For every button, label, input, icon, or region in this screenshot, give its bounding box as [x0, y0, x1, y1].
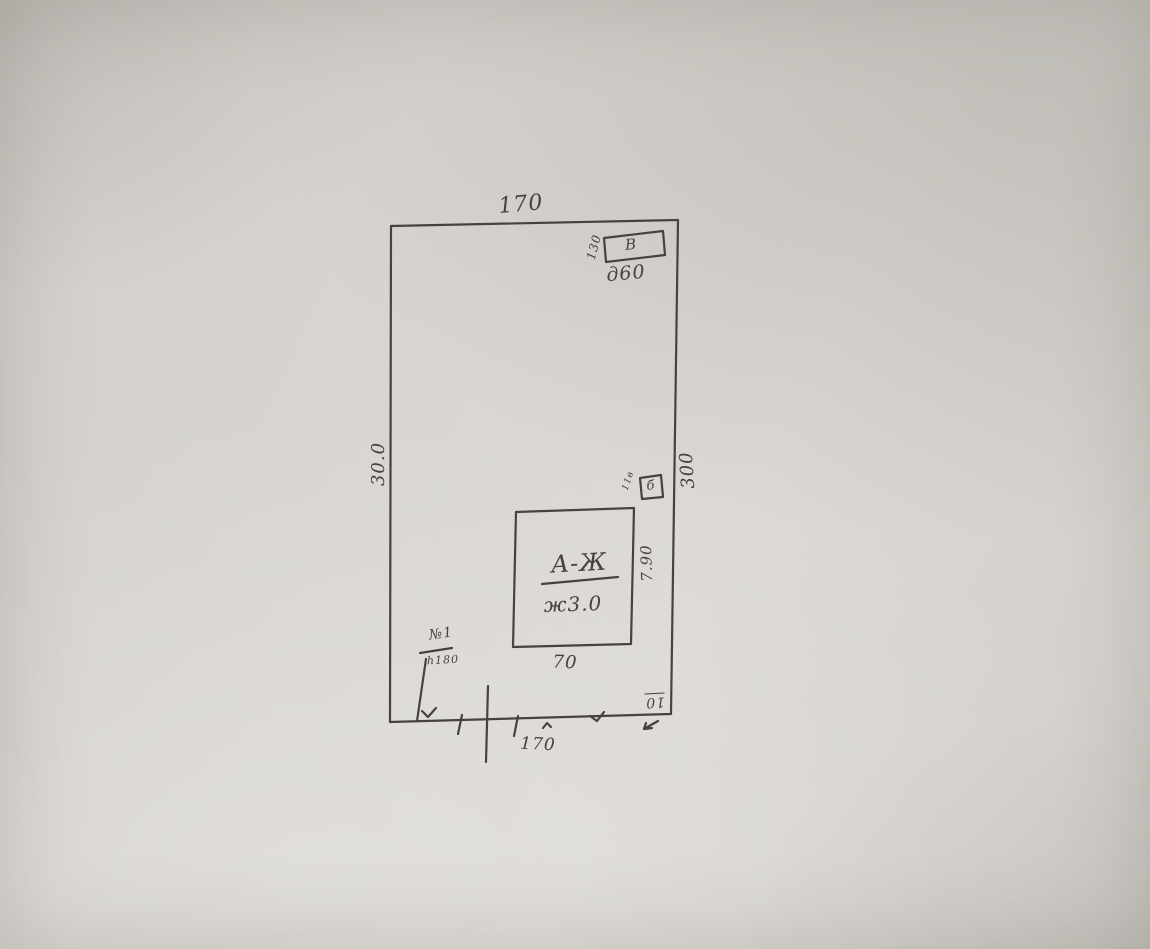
street-bottom-dimension: 170	[520, 736, 556, 755]
plot-left-dimension: 30.0	[370, 442, 388, 486]
plot-right-dimension: 300	[678, 451, 699, 490]
plot-top-dimension: 170	[498, 192, 545, 218]
building-height-dimension: 7.90	[639, 544, 655, 582]
paper-sheet: 170 30.0 300 В 130 д60 б 11в А-Ж ж3.0 7.…	[0, 0, 1150, 949]
shed-top-letter: В	[624, 237, 637, 253]
tick-check-left	[422, 708, 436, 717]
gate-label: №1	[428, 625, 454, 642]
shed-mid-letter: б	[646, 479, 656, 493]
building-label: А-Ж	[550, 550, 607, 577]
building-width-dimension: 70	[552, 654, 578, 673]
shed-top-width-dimension: д60	[606, 263, 647, 285]
building-note: ж3.0	[543, 593, 602, 615]
site-plan-sketch	[0, 0, 1150, 949]
tick-mark-1	[458, 715, 462, 734]
fence-cross-line	[486, 686, 488, 762]
tick-caret-small	[543, 723, 551, 728]
gate-height-note: h180	[427, 654, 460, 667]
corner-dimension: 10	[645, 692, 666, 709]
corner-arrow	[644, 721, 658, 729]
